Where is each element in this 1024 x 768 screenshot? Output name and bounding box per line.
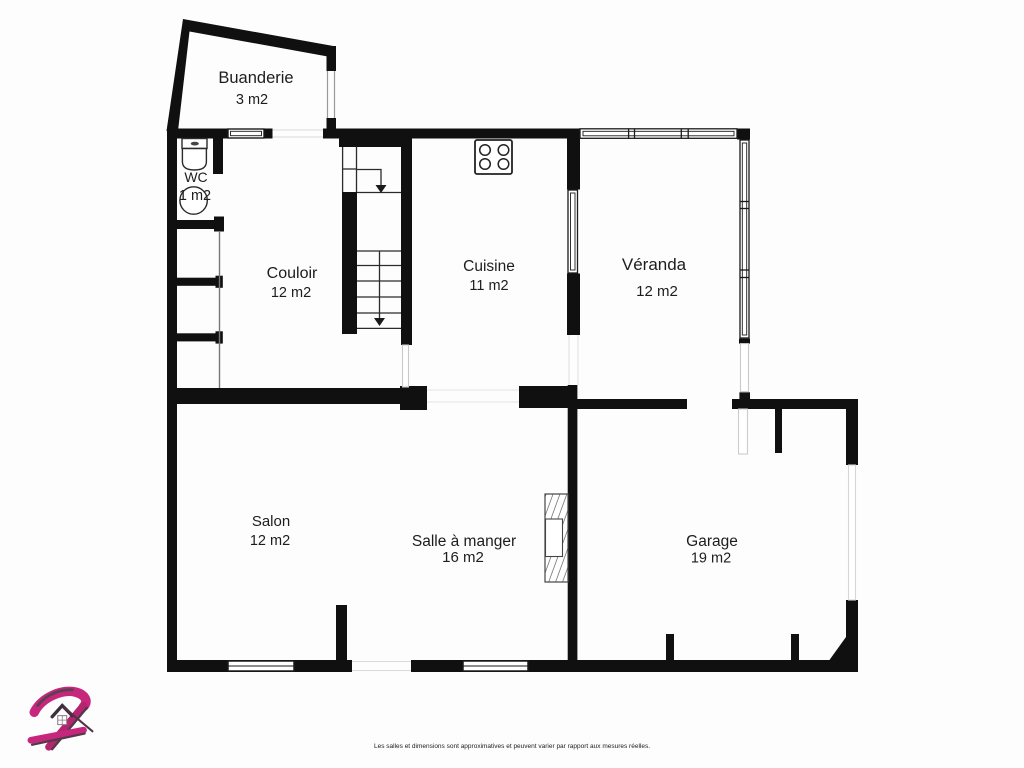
- svg-text:Buanderie: Buanderie: [218, 69, 293, 87]
- svg-text:12 m2: 12 m2: [636, 283, 678, 300]
- svg-text:16 m2: 16 m2: [442, 549, 484, 566]
- svg-text:Les salles et dimensions sont: Les salles et dimensions sont approximat…: [374, 743, 650, 750]
- svg-text:WC: WC: [184, 169, 207, 185]
- svg-text:1 m2: 1 m2: [179, 188, 211, 204]
- svg-text:Cuisine: Cuisine: [463, 258, 515, 275]
- svg-text:12 m2: 12 m2: [250, 533, 290, 549]
- svg-text:Couloir: Couloir: [267, 265, 318, 282]
- svg-text:Salle à manger: Salle à manger: [412, 533, 516, 550]
- svg-text:19 m2: 19 m2: [691, 551, 731, 567]
- svg-text:Garage: Garage: [686, 533, 738, 550]
- svg-text:Salon: Salon: [252, 513, 290, 530]
- svg-text:3 m2: 3 m2: [236, 92, 268, 108]
- svg-text:11 m2: 11 m2: [469, 278, 508, 294]
- svg-text:Véranda: Véranda: [622, 255, 687, 274]
- svg-text:12 m2: 12 m2: [271, 285, 311, 301]
